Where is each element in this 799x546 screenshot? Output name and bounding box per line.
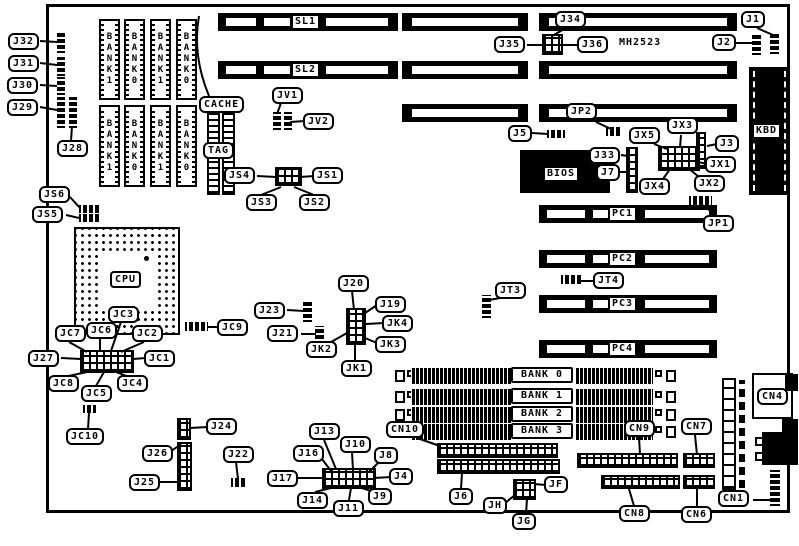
callout-jc4: JC4: [117, 375, 148, 392]
callout-j11: J11: [333, 500, 364, 517]
callout-cn4: CN4: [757, 388, 788, 405]
callout-j2: J2: [712, 34, 736, 51]
callout-js3: JS3: [246, 194, 277, 211]
jumper-jc9: [185, 322, 208, 331]
callout-jc7: JC7: [55, 325, 86, 342]
cache-chip: BANK0: [124, 105, 145, 187]
callout-tag: TAG: [203, 142, 234, 159]
callout-j33: J33: [589, 147, 620, 164]
connector-notch: [755, 437, 764, 446]
callout-j31: J31: [8, 55, 39, 72]
jumper-block-js: [275, 167, 302, 186]
callout-j6: J6: [449, 488, 473, 505]
bank2-label: BANK 2: [511, 406, 573, 422]
jumper-jv2: [284, 112, 292, 130]
header-cn9: [577, 453, 678, 468]
callout-jp2: JP2: [566, 103, 597, 120]
header-j24: [177, 418, 191, 440]
jumper-block-jc: [80, 350, 134, 373]
board-model-text: MH2523: [619, 37, 661, 48]
callout-jc1: JC1: [144, 350, 175, 367]
callout-j14: J14: [297, 492, 328, 509]
jumper-js6: [79, 205, 99, 213]
slot-sl1-ext: [402, 13, 528, 31]
header-cn6: [683, 475, 715, 489]
callout-j26: J26: [142, 445, 173, 462]
callout-jx1: JX1: [705, 156, 736, 173]
callout-j22: J22: [223, 446, 254, 463]
jumper-j32: [57, 33, 65, 53]
callout-j4: J4: [389, 468, 413, 485]
callout-jx5: JX5: [629, 127, 660, 144]
external-connector-step: [782, 419, 798, 433]
jumper-j2: [752, 33, 761, 55]
connector-notch: [755, 452, 764, 461]
callout-j21: J21: [267, 325, 298, 342]
callout-jk3: JK3: [375, 336, 406, 353]
callout-cn7: CN7: [681, 418, 712, 435]
jumper-js5: [79, 214, 99, 222]
callout-jk2: JK2: [306, 341, 337, 358]
cache-chip: BANK1: [99, 105, 120, 187]
callout-j7: J7: [596, 164, 620, 181]
callout-jp1: JP1: [703, 215, 734, 232]
kbd-label: KBD: [752, 123, 781, 139]
jumper-jp2: [606, 127, 621, 136]
callout-j17: J17: [267, 470, 298, 487]
kbd-dash: [784, 71, 786, 191]
callout-j3: J3: [715, 135, 739, 152]
cpu-label: CPU: [110, 271, 141, 288]
slot-row2-right: [539, 61, 737, 79]
callout-j16: J16: [293, 445, 324, 462]
callout-jx4: JX4: [639, 178, 670, 195]
callout-j29: J29: [7, 99, 38, 116]
callout-jk4: JK4: [382, 315, 413, 332]
motherboard-diagram: SL1 SL2 PC1 PC2 PC3 PC4 BANK1 BANK0 BANK…: [0, 0, 799, 546]
bank0-label: BANK 0: [511, 367, 573, 383]
callout-j36: J36: [577, 36, 608, 53]
jumper-jv1: [273, 112, 281, 130]
callout-j10: J10: [340, 436, 371, 453]
jumper-j22: [231, 478, 245, 487]
callout-jc2: JC2: [132, 325, 163, 342]
jumper-j1: [770, 32, 779, 54]
callout-cache: CACHE: [199, 96, 244, 113]
slot-row3-left: [402, 104, 528, 122]
callout-js2: JS2: [299, 194, 330, 211]
power-connector-right: [739, 380, 745, 488]
callout-js5: JS5: [32, 206, 63, 223]
callout-js1: JS1: [312, 167, 343, 184]
cache-chip: BANK1: [150, 105, 171, 187]
cn4-tab: [785, 374, 798, 391]
callout-cn8: CN8: [619, 505, 650, 522]
jumper-jc10: [83, 405, 96, 413]
callout-jc8: JC8: [48, 375, 79, 392]
jumper-j5: [547, 130, 565, 138]
slot-label-sl2: SL2: [291, 62, 320, 78]
callout-cn10: CN10: [386, 421, 424, 438]
header-j25: [177, 442, 192, 491]
callout-j8: J8: [374, 447, 398, 464]
header-cn10: [437, 443, 558, 458]
jumper-j30: [57, 77, 65, 95]
callout-j24: J24: [206, 418, 237, 435]
callout-jg: JG: [512, 513, 536, 530]
cache-chip: BANK0: [124, 19, 145, 100]
callout-j30: J30: [7, 77, 38, 94]
jumper-jt3: [482, 295, 491, 318]
callout-j35: J35: [494, 36, 525, 53]
callout-j13: J13: [309, 423, 340, 440]
jumper-block-j35-j36: [542, 34, 563, 55]
callout-jv2: JV2: [303, 113, 334, 130]
callout-j25: J25: [129, 474, 160, 491]
callout-j27: J27: [28, 350, 59, 367]
callout-js6: JS6: [39, 186, 70, 203]
callout-jc6: JC6: [86, 322, 117, 339]
jumper-j28: [69, 97, 77, 128]
callout-jc10: JC10: [66, 428, 104, 445]
callout-jx3: JX3: [667, 117, 698, 134]
jumper-block-jx: [658, 146, 700, 171]
jumper-j31: [57, 57, 65, 76]
header-cn7: [683, 453, 715, 468]
callout-jf: JF: [544, 476, 568, 493]
cache-chip: BANK0: [176, 19, 197, 100]
callout-jv1: JV1: [272, 87, 303, 104]
callout-j1: J1: [741, 11, 765, 28]
jumper-block-j20-jk: [346, 308, 366, 345]
callout-cn1: CN1: [718, 490, 749, 507]
jumper-jt4: [561, 275, 581, 284]
jumper-jp1: [689, 196, 712, 205]
callout-j5: J5: [508, 125, 532, 142]
cache-chip: BANK1: [150, 19, 171, 100]
jumper-j23: [303, 302, 312, 322]
callout-j23: J23: [254, 302, 285, 319]
cpu-pin1-dot: [144, 256, 149, 261]
callout-cn9: CN9: [624, 420, 655, 437]
callout-jx2: JX2: [694, 175, 725, 192]
bios-label: BIOS: [543, 166, 579, 182]
bank1-label: BANK 1: [511, 388, 573, 404]
header-j6: [437, 459, 560, 474]
slot-label-pc1: PC1: [608, 206, 637, 222]
jumper-block-jh-jg-jf: [513, 479, 536, 500]
callout-j34: J34: [555, 11, 586, 28]
callout-jc3: JC3: [108, 306, 139, 323]
external-connector-body: [762, 432, 798, 465]
callout-jt4: JT4: [593, 272, 624, 289]
callout-j9: J9: [368, 488, 392, 505]
power-connector-left: [722, 378, 736, 490]
bank3-label: BANK 3: [511, 423, 573, 439]
callout-j20: J20: [338, 275, 369, 292]
callout-j28: J28: [57, 140, 88, 157]
header-j33-j7: [626, 147, 638, 193]
slot-label-sl1: SL1: [291, 14, 320, 30]
callout-jc9: JC9: [217, 319, 248, 336]
callout-jt3: JT3: [495, 282, 526, 299]
callout-jh: JH: [483, 497, 507, 514]
slot-sl2-ext: [402, 61, 528, 79]
callout-j19: J19: [375, 296, 406, 313]
jumper-j29: [57, 97, 65, 128]
callout-cn6: CN6: [681, 506, 712, 523]
jumper-block-j13: [322, 468, 376, 489]
slot-label-pc2: PC2: [608, 251, 637, 267]
cache-chip: BANK0: [176, 105, 197, 187]
slot-label-pc3: PC3: [608, 296, 637, 312]
callout-js4: JS4: [224, 167, 255, 184]
slot-label-pc4: PC4: [608, 341, 637, 357]
callout-jc5: JC5: [81, 385, 112, 402]
header-cn8: [601, 475, 680, 489]
callout-jk1: JK1: [341, 360, 372, 377]
callout-j32: J32: [8, 33, 39, 50]
cache-chip: BANK1: [99, 19, 120, 100]
connector-cn1: [770, 470, 780, 506]
